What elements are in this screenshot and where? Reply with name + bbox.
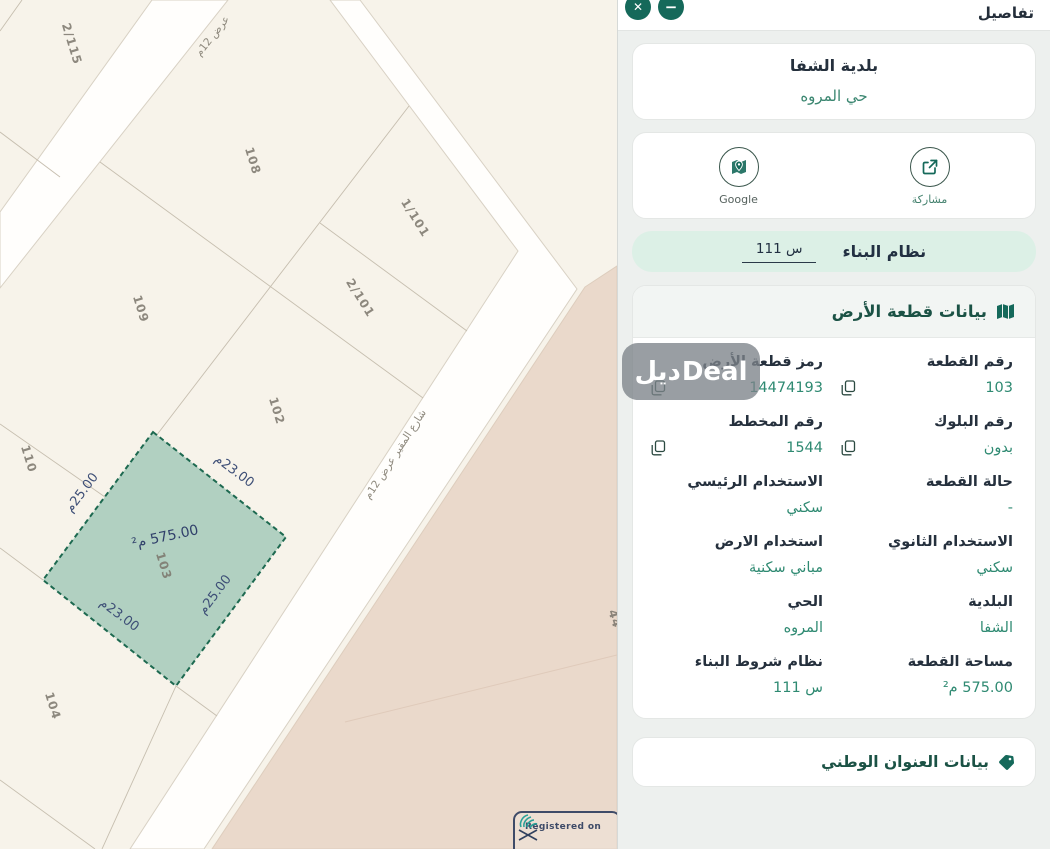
minimize-button[interactable]: −: [658, 0, 684, 20]
field-label: البلدية: [841, 594, 1013, 610]
actions-card: مشاركة Google: [632, 132, 1036, 219]
panel-header: ✕ − تفاصيل: [618, 0, 1050, 31]
copy-icon[interactable]: [651, 380, 666, 396]
field-label: نظام شروط البناء: [651, 654, 823, 670]
building-system-value[interactable]: س 111: [742, 241, 817, 263]
field-label: رمز قطعة الأرض: [651, 354, 823, 370]
field-label: حالة القطعة: [841, 474, 1013, 490]
municipality-card: بلدية الشفا حي المروه: [632, 43, 1036, 120]
google-maps-button[interactable]: Google: [719, 147, 759, 206]
copy-icon[interactable]: [841, 440, 856, 456]
field-value: 575.00 م²: [943, 680, 1013, 696]
details-panel: ✕ − تفاصيل بلدية الشفا حي المروه: [617, 0, 1050, 849]
field-cell: الاستخدام الرئيسيسكني: [651, 474, 823, 519]
field-value-row: بدون: [841, 437, 1013, 459]
panel-body: بلدية الشفا حي المروه مشاركة: [618, 31, 1050, 787]
registered-badge: Registered on: [513, 811, 617, 849]
field-label: الحي: [651, 594, 823, 610]
copy-icon[interactable]: [651, 440, 666, 456]
field-label: رقم البلوك: [841, 414, 1013, 430]
field-label: رقم القطعة: [841, 354, 1013, 370]
national-address-title: بيانات العنوان الوطني: [821, 753, 989, 771]
field-value-row: 1544: [651, 437, 823, 459]
map-flag-icon: [996, 303, 1015, 320]
field-value: -: [1008, 500, 1013, 516]
field-cell: مساحة القطعة575.00 م²: [841, 654, 1013, 699]
share-icon: [910, 147, 950, 187]
field-value-row: -: [841, 497, 1013, 519]
field-label: الاستخدام الرئيسي: [651, 474, 823, 490]
field-value: 14474193: [749, 380, 823, 396]
share-label: مشاركة: [912, 193, 948, 206]
field-cell: الحيالمروه: [651, 594, 823, 639]
field-label: مساحة القطعة: [841, 654, 1013, 670]
field-value-row: سكني: [841, 557, 1013, 579]
field-cell: رقم البلوكبدون: [841, 414, 1013, 459]
field-value: 1544: [786, 440, 823, 456]
field-cell: رقم المخطط1544: [651, 414, 823, 459]
building-system-label: نظام البناء: [842, 242, 926, 261]
field-label: الاستخدام الثانوي: [841, 534, 1013, 550]
field-value: بدون: [984, 440, 1013, 456]
map-canvas[interactable]: 2/115 108 1/101 2/101 109 102 110 104 44…: [0, 0, 617, 849]
field-value-row: 103: [841, 377, 1013, 399]
field-value: سكني: [976, 560, 1013, 576]
field-value: الشفا: [980, 620, 1013, 636]
close-button[interactable]: ✕: [625, 0, 651, 20]
field-value: سكني: [786, 500, 823, 516]
field-cell: حالة القطعة-: [841, 474, 1013, 519]
field-value-row: 575.00 م²: [841, 677, 1013, 699]
field-cell: رقم القطعة103: [841, 354, 1013, 399]
field-label: استخدام الارض: [651, 534, 823, 550]
share-button[interactable]: مشاركة: [910, 147, 950, 206]
field-value: س 111: [773, 680, 823, 696]
field-cell: استخدام الارضمباني سكنية: [651, 534, 823, 579]
field-value: 103: [985, 380, 1013, 396]
land-card-header: بيانات قطعة الأرض: [633, 286, 1035, 338]
field-cell: نظام شروط البناءس 111: [651, 654, 823, 699]
district-name: حي المروه: [643, 87, 1025, 105]
tag-icon: [998, 754, 1015, 771]
google-maps-icon: [719, 147, 759, 187]
panel-title: تفاصيل: [978, 0, 1034, 26]
field-value: المروه: [784, 620, 823, 636]
field-value: مباني سكنية: [749, 560, 823, 576]
field-value-row: 14474193: [651, 377, 823, 399]
municipality-name: بلدية الشفا: [643, 56, 1025, 75]
parcel-map-svg: 2/115 108 1/101 2/101 109 102 110 104 44…: [0, 0, 617, 849]
authority-emblem-icon: [515, 813, 541, 843]
google-label: Google: [719, 193, 758, 206]
national-address-card[interactable]: بيانات العنوان الوطني: [632, 737, 1036, 787]
building-system-bar: نظام البناء س 111: [632, 231, 1036, 272]
field-value-row: سكني: [651, 497, 823, 519]
field-value-row: المروه: [651, 617, 823, 639]
field-cell: رمز قطعة الأرض14474193: [651, 354, 823, 399]
field-label: رقم المخطط: [651, 414, 823, 430]
land-parcel-viewer: 2/115 108 1/101 2/101 109 102 110 104 44…: [0, 0, 1050, 849]
field-value-row: الشفا: [841, 617, 1013, 639]
land-data-card: بيانات قطعة الأرض رقم القطعة103رمز قطعة …: [632, 285, 1036, 719]
field-value-row: مباني سكنية: [651, 557, 823, 579]
land-fields-grid: رقم القطعة103رمز قطعة الأرض14474193رقم ا…: [633, 338, 1035, 718]
field-cell: الاستخدام الثانويسكني: [841, 534, 1013, 579]
land-card-title: بيانات قطعة الأرض: [832, 302, 987, 321]
field-cell: البلديةالشفا: [841, 594, 1013, 639]
copy-icon[interactable]: [841, 380, 856, 396]
field-value-row: س 111: [651, 677, 823, 699]
